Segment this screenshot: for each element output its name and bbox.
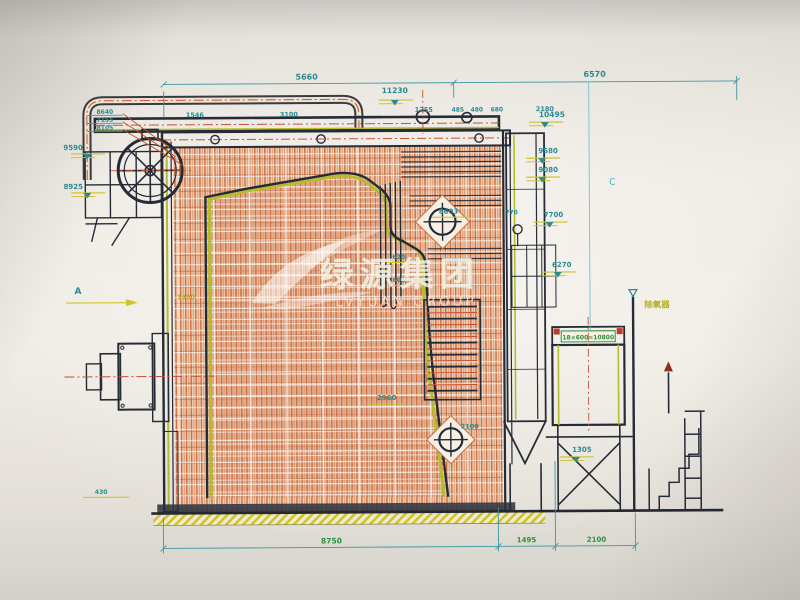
level-symbol-icon xyxy=(526,158,560,164)
elev-6270: 6270 xyxy=(552,261,572,269)
rail-dim: 3100 xyxy=(280,111,299,119)
rail-dim: 680 xyxy=(491,106,504,113)
level-symbol-icon xyxy=(542,272,576,278)
watermark-en: LVYUAN GROUP xyxy=(335,294,477,311)
ground xyxy=(151,510,723,525)
elev-8925: 8925 xyxy=(64,183,84,191)
watermark-cn: 绿源集团 xyxy=(320,255,480,296)
rail-dim: 1546 xyxy=(186,111,205,119)
elev-10495: 10495 xyxy=(539,110,565,119)
label-8603: 8603 xyxy=(439,208,459,216)
deaerator-pole: 除氧器 xyxy=(629,289,672,510)
elev-9080: 9080 xyxy=(538,166,558,174)
level-symbol-icon xyxy=(534,222,568,228)
elev-11230: 11230 xyxy=(382,86,408,95)
label-2100-mid: 2100 xyxy=(461,423,480,431)
section-marker-a: A xyxy=(74,287,81,297)
dim-1495: 1495 xyxy=(517,536,537,544)
level-symbol-icon xyxy=(379,100,413,106)
level-symbol-icon xyxy=(526,177,560,183)
right-elevations: 10495 9580 9080 7700 6270 1305 C xyxy=(526,81,617,463)
boiler-elevation-drawing: 18×600=10800 除氧器 xyxy=(0,0,800,600)
elev-7700: 7700 xyxy=(544,211,564,219)
label-2960: 2960 xyxy=(377,394,397,402)
grid-line xyxy=(589,81,591,331)
elev-9580: 9580 xyxy=(538,147,558,155)
dimension-top: 5660 6570 11230 xyxy=(161,69,740,118)
section-arrow xyxy=(66,299,138,306)
air-heater-legs xyxy=(546,425,634,512)
photographed-drawing: 18×600=10800 除氧器 xyxy=(0,0,800,600)
elev-9590: 9590 xyxy=(63,144,83,152)
label-770: 770 xyxy=(505,209,518,216)
section-marker-c: C xyxy=(609,178,615,188)
rail-dim: 480 xyxy=(471,106,484,113)
elev-1305: 1305 xyxy=(572,446,592,454)
rail-dim: 485 xyxy=(452,107,465,114)
flag-icon xyxy=(664,361,673,371)
dim-top-right: 6570 xyxy=(583,70,606,79)
left-stack-dim: 7155 xyxy=(97,117,114,124)
deaerator-label: 除氧器 xyxy=(644,299,670,310)
label-430: 430 xyxy=(95,489,108,496)
stair-tower xyxy=(649,411,706,510)
level-symbol-icon xyxy=(629,290,637,297)
label-1480: 1480 xyxy=(177,293,196,301)
dim-8750: 8750 xyxy=(321,536,342,545)
left-stack-dim: 8640 xyxy=(96,109,113,116)
rail-dim: 1255 xyxy=(415,106,434,114)
dim-top-left: 5660 xyxy=(295,72,318,81)
flag-marker xyxy=(664,361,673,413)
left-stack-dim: 8105 xyxy=(97,125,114,132)
level-symbol-icon xyxy=(529,122,563,128)
air-preheater: 18×600=10800 xyxy=(545,317,633,512)
dim-2100: 2100 xyxy=(587,536,607,544)
ash-hopper xyxy=(504,421,546,463)
level-symbol-icon xyxy=(71,193,105,199)
